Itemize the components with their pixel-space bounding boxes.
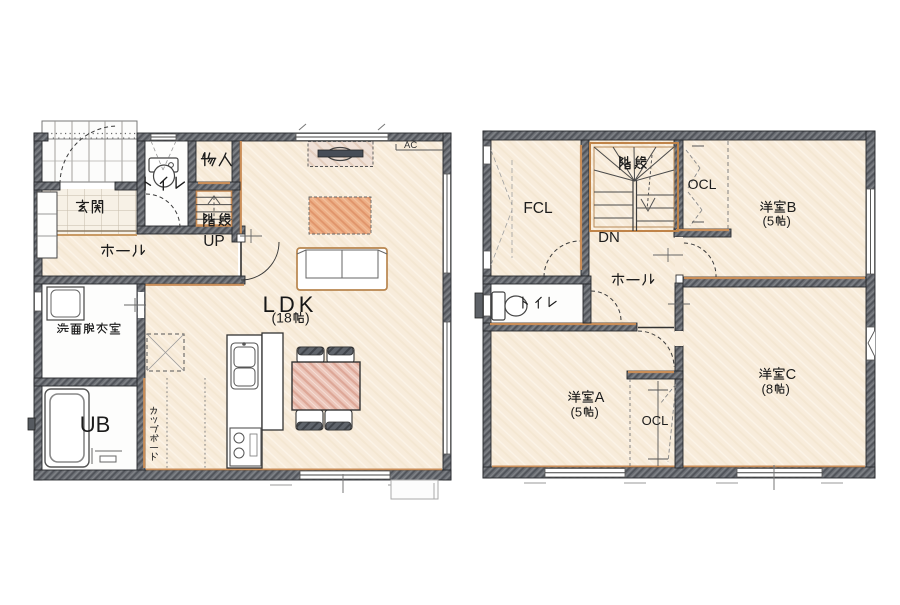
svg-text:OCL: OCL [688, 176, 717, 192]
svg-text:UP: UP [203, 233, 225, 250]
svg-text:FCL: FCL [523, 200, 553, 217]
svg-text:DN: DN [598, 229, 620, 246]
svg-text:OCL: OCL [642, 413, 669, 428]
svg-text:): ) [595, 404, 599, 419]
svg-text:(5: (5 [763, 213, 775, 228]
svg-text:): ) [786, 381, 790, 396]
svg-text:): ) [305, 310, 310, 326]
svg-text:(18: (18 [272, 310, 292, 326]
svg-text:AC: AC [404, 140, 417, 151]
svg-text:(8: (8 [762, 381, 774, 396]
svg-text:): ) [787, 213, 791, 228]
svg-text:(5: (5 [571, 404, 583, 419]
svg-text:UB: UB [80, 412, 111, 437]
